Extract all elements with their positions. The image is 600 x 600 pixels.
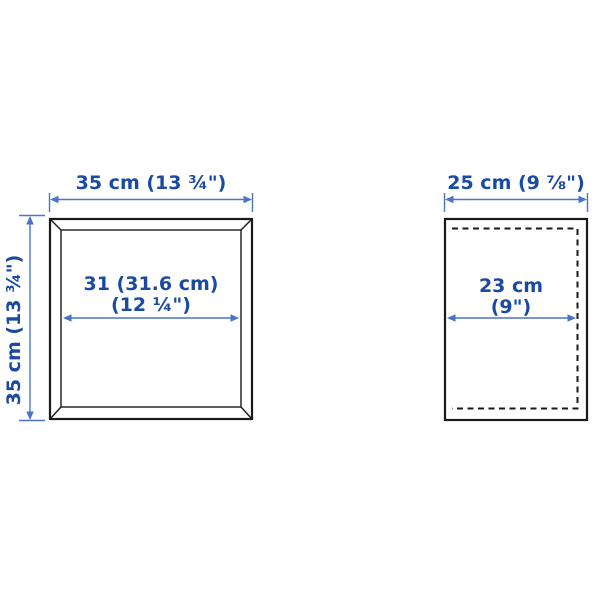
arrowhead-right-icon (244, 196, 253, 204)
product-dimension-diagram: 35 cm (13 ¾") 35 cm (13 ¾") 31 (31.6 cm)… (0, 0, 600, 600)
frame-miter-top-left (50, 219, 61, 230)
arrowhead-down-icon (26, 412, 34, 421)
panel-outline (445, 219, 587, 420)
side-view-panel (445, 219, 587, 420)
arrowhead-left-icon (445, 196, 454, 204)
front-view-frame (50, 219, 252, 419)
arrowhead-right-icon (579, 196, 588, 204)
frame-miter-top-right (241, 219, 252, 230)
side-depth-dimension-line (445, 193, 588, 212)
front-inner-width-label: 31 (31.6 cm) (12 ¼") (51, 274, 251, 316)
front-inner-width-line2: (12 ¼") (51, 295, 251, 316)
frame-miter-bottom-left (50, 407, 61, 419)
front-outer-height-label: 35 cm (13 ¾") (2, 220, 26, 440)
side-depth-label: 25 cm (9 ⅞") (445, 173, 587, 194)
side-inner-depth-label: 23 cm (9") (411, 276, 600, 318)
front-width-dimension-line (50, 193, 253, 212)
arrowhead-up-icon (26, 216, 34, 225)
side-inner-depth-line2: (9") (411, 297, 600, 318)
frame-outer-edge (50, 219, 252, 419)
side-inner-depth-line1: 23 cm (411, 276, 600, 297)
frame-miter-bottom-right (241, 407, 252, 419)
front-inner-width-line1: 31 (31.6 cm) (51, 274, 251, 295)
front-outer-width-label: 35 cm (13 ¾") (50, 173, 252, 194)
arrowhead-left-icon (50, 196, 59, 204)
